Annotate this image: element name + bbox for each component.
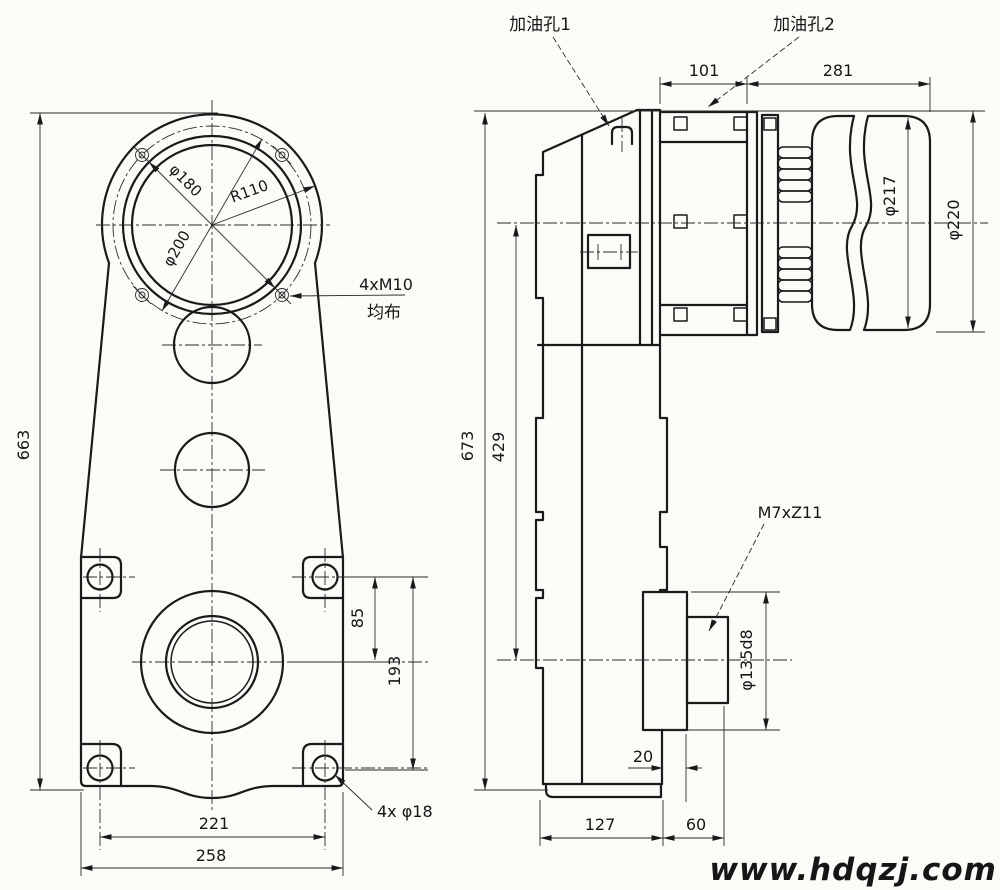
side-height-label: 673 [458, 431, 477, 462]
bolt-circle-label: φ200 [159, 227, 194, 269]
oil-level-window [588, 235, 630, 268]
bore-dia-label: φ180 [166, 160, 206, 200]
engineering-drawing-page: φ180 R110 φ200 663 4xM10 均布 85 193 221 2… [0, 0, 1000, 890]
hub-dia-label: φ135d8 [737, 629, 756, 690]
motor-length-label: 281 [823, 61, 854, 80]
front-view [81, 100, 428, 850]
axis-offset-label: 193 [385, 656, 404, 687]
hub-overhang-label: 20 [633, 747, 653, 766]
hole-span-label: 221 [199, 814, 230, 833]
adapter-bolts [674, 117, 747, 321]
front-view-dimensions: φ180 R110 φ200 663 4xM10 均布 85 193 221 2… [14, 113, 433, 876]
side-view [497, 110, 988, 797]
motor-dia-label: φ217 [880, 175, 899, 216]
oil-hole-2-label: 加油孔2 [773, 15, 835, 35]
base-length-label: 127 [585, 815, 616, 834]
shaft-overhang-label: 60 [686, 815, 706, 834]
housing-radius-label: R110 [228, 176, 271, 206]
axis-distance-label: 429 [489, 432, 508, 463]
hole-offset-label: 85 [348, 608, 367, 628]
bolt-pattern-note: 均布 [367, 303, 401, 323]
oil-hole-1-label: 加油孔1 [509, 15, 571, 35]
spline-label: M7xZ11 [758, 503, 823, 522]
base-width-label: 258 [196, 846, 227, 865]
watermark-url: www.hdqzj.com [709, 852, 997, 888]
motor-od-label: φ220 [944, 199, 963, 240]
front-height-label: 663 [14, 430, 33, 461]
motor-fins [778, 147, 812, 302]
gearbox-technical-drawing: φ180 R110 φ200 663 4xM10 均布 85 193 221 2… [0, 0, 1000, 890]
base-holes-label: 4x φ18 [377, 802, 433, 821]
adapter-length-label: 101 [689, 61, 720, 80]
output-boss [643, 592, 687, 730]
bolt-pattern-label: 4xM10 [359, 275, 413, 294]
